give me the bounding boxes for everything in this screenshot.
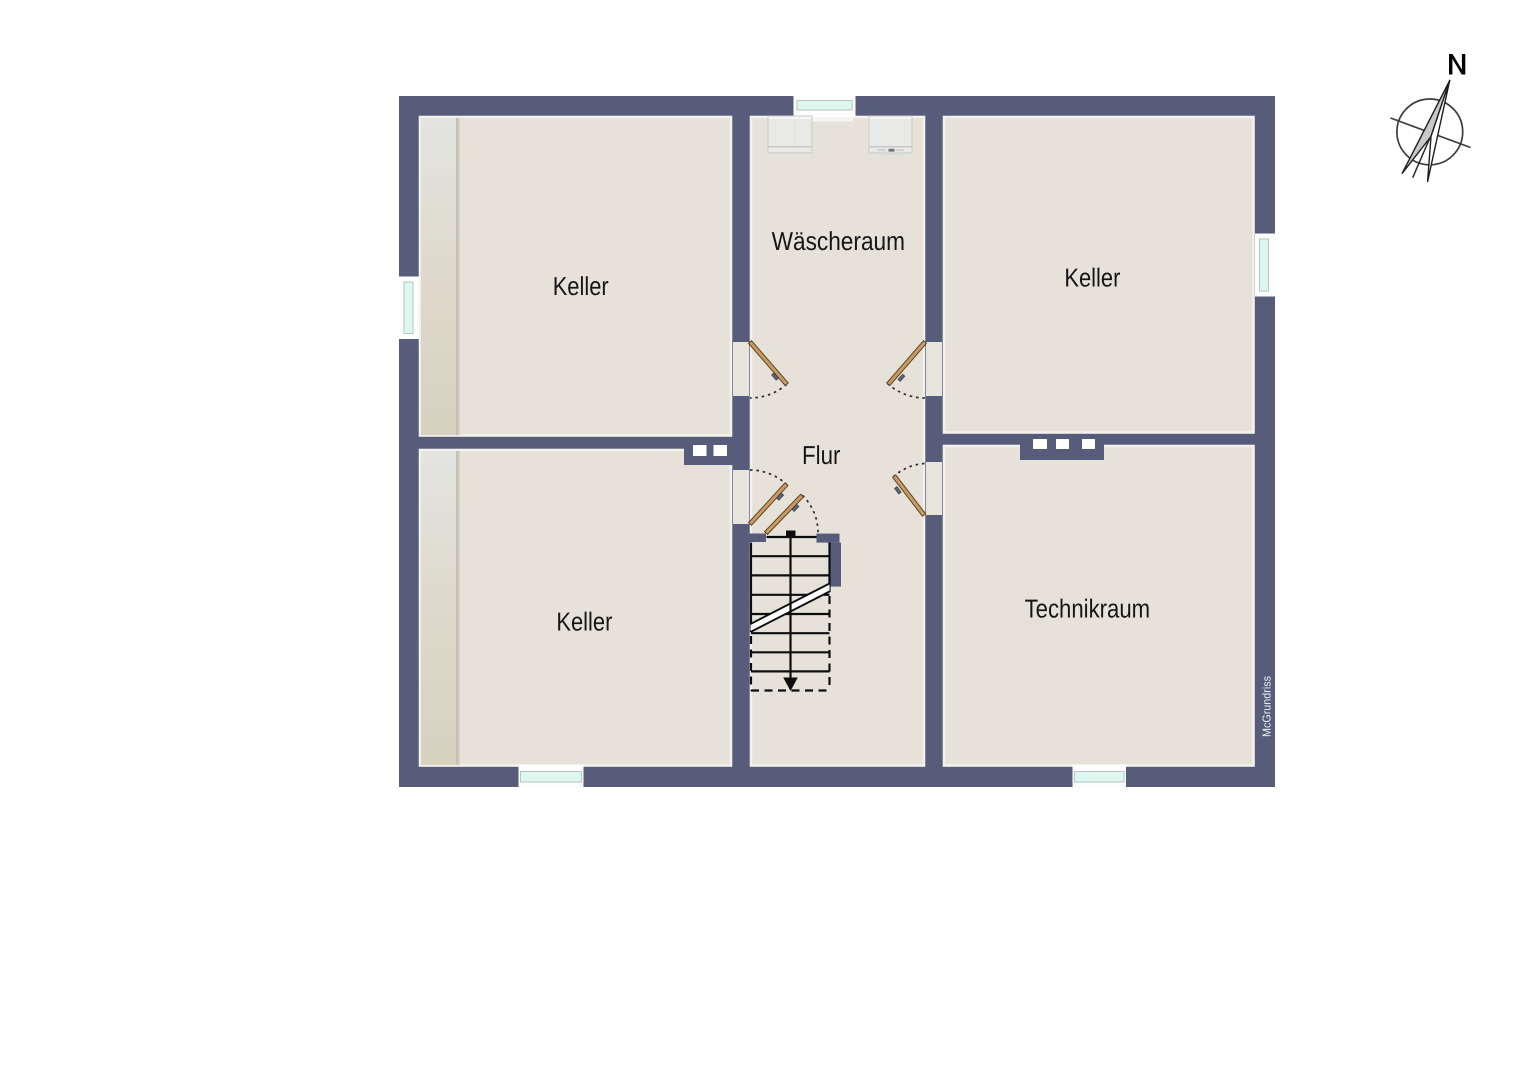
svg-text:Keller: Keller bbox=[1064, 262, 1120, 292]
svg-text:Technikraum: Technikraum bbox=[1025, 594, 1151, 624]
svg-text:Keller: Keller bbox=[553, 271, 609, 301]
svg-text:Keller: Keller bbox=[556, 607, 612, 637]
svg-text:McGrundriss: McGrundriss bbox=[1262, 676, 1274, 737]
svg-text:Flur: Flur bbox=[802, 440, 841, 470]
svg-text:Wäscheraum: Wäscheraum bbox=[772, 226, 905, 256]
